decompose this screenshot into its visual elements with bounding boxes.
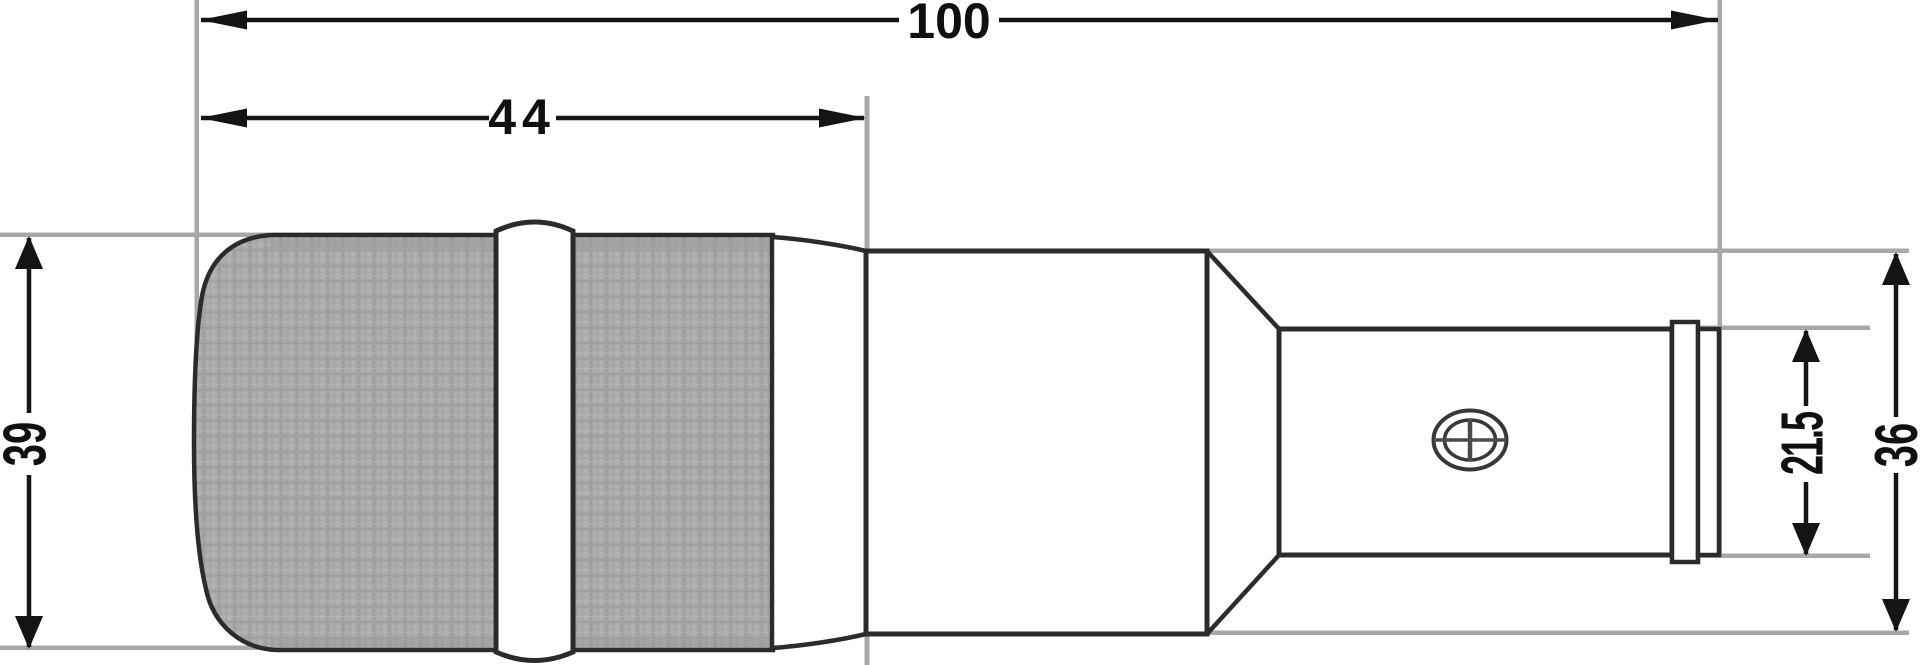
svg-text:36: 36 xyxy=(1863,423,1920,467)
svg-text:21.5: 21.5 xyxy=(1770,412,1835,475)
svg-text:39: 39 xyxy=(0,422,58,466)
svg-text:100: 100 xyxy=(907,0,990,49)
svg-text:44: 44 xyxy=(488,89,556,145)
